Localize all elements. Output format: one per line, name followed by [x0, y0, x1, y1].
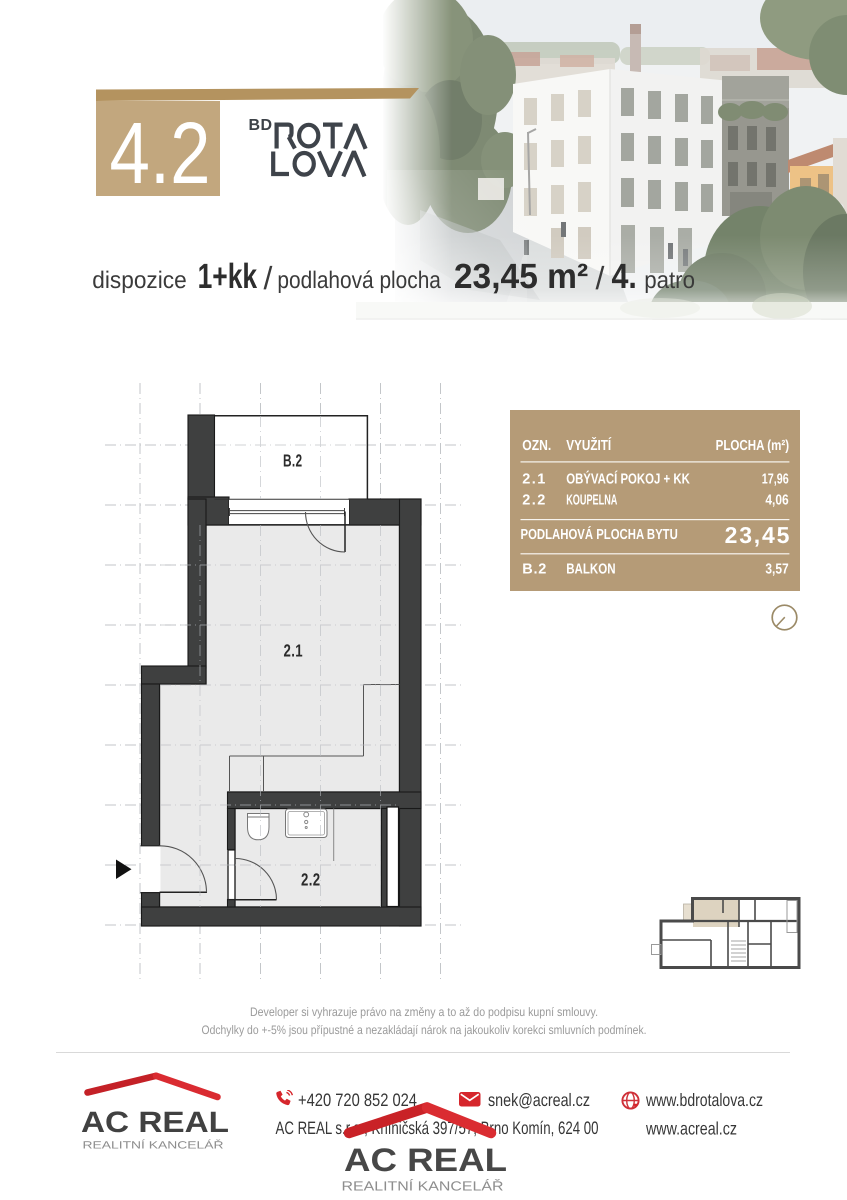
svg-text:2.2: 2.2 [301, 870, 321, 890]
svg-text:/: / [596, 260, 605, 296]
svg-text:KOUPELNA: KOUPELNA [566, 492, 618, 508]
svg-text:3,57: 3,57 [765, 562, 788, 578]
svg-text:OZN.: OZN. [522, 438, 551, 454]
svg-text:www.bdrotalova.cz: www.bdrotalova.cz [645, 1090, 763, 1110]
svg-text:2.1: 2.1 [522, 472, 545, 488]
svg-text:dispozice: dispozice [92, 267, 186, 294]
svg-text:4.: 4. [612, 257, 637, 296]
svg-text:patro: patro [644, 267, 695, 294]
svg-text:23,45 m²: 23,45 m² [454, 257, 588, 296]
svg-text:2.1: 2.1 [284, 641, 304, 661]
svg-text:B.2: B.2 [283, 451, 302, 471]
svg-text:BD: BD [249, 117, 273, 134]
svg-text:PLOCHA (m²): PLOCHA (m²) [716, 438, 790, 454]
svg-text:4,06: 4,06 [765, 492, 788, 508]
svg-text:OBÝVACÍ POKOJ + KK: OBÝVACÍ POKOJ + KK [566, 471, 690, 488]
svg-text:VYUŽITÍ: VYUŽITÍ [566, 437, 612, 454]
svg-text:17,96: 17,96 [762, 472, 789, 488]
svg-text:BALKON: BALKON [566, 562, 615, 578]
svg-text:23,45: 23,45 [725, 522, 790, 548]
svg-text:Developer si vyhrazuje právo n: Developer si vyhrazuje právo na změny a … [250, 1005, 598, 1019]
svg-text:1+kk: 1+kk [198, 257, 258, 296]
svg-text:podlahová plocha: podlahová plocha [277, 267, 441, 294]
svg-text:AC REAL: AC REAL [344, 1142, 507, 1178]
svg-text:PODLAHOVÁ PLOCHA BYTU: PODLAHOVÁ PLOCHA BYTU [521, 526, 678, 543]
svg-text:AC REAL: AC REAL [81, 1106, 229, 1139]
svg-text:2.2: 2.2 [522, 492, 545, 508]
svg-text:REALITNÍ KANCELÁŘ: REALITNÍ KANCELÁŘ [83, 1139, 225, 1152]
svg-text:www.acreal.cz: www.acreal.cz [645, 1119, 737, 1139]
svg-text:/: / [264, 260, 273, 296]
svg-text:Odchylky do +-5% jsou přípustn: Odchylky do +-5% jsou přípustné a nezakl… [202, 1023, 647, 1037]
svg-text:B.2: B.2 [522, 562, 546, 578]
svg-text:REALITNÍ KANCELÁŘ: REALITNÍ KANCELÁŘ [342, 1179, 504, 1194]
